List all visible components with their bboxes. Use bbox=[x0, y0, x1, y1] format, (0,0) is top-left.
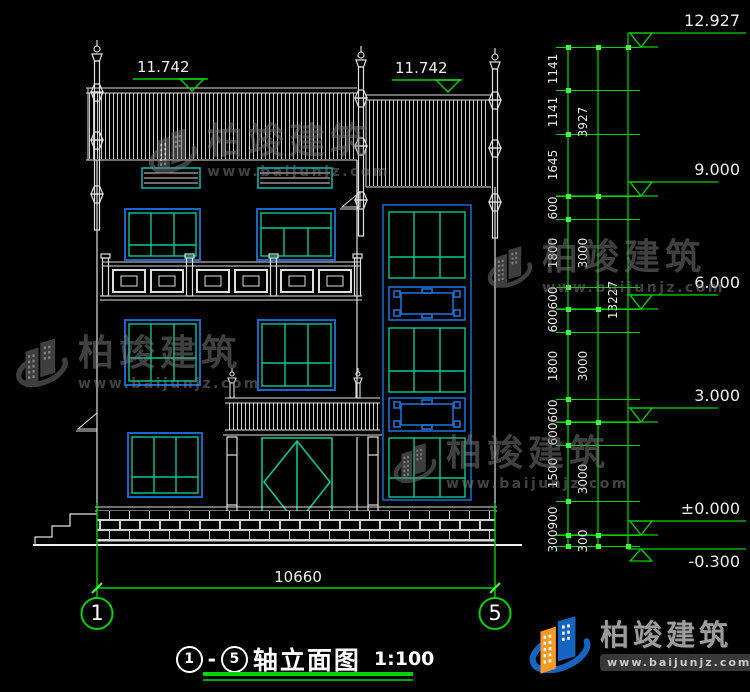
window-r3 bbox=[258, 320, 335, 390]
footer-brand-logo: 柏竣建筑 www.baijunjz.com bbox=[527, 609, 750, 683]
level-12927: 12.927 bbox=[630, 13, 740, 29]
louver-vent-left bbox=[142, 168, 200, 188]
brick-base bbox=[95, 507, 497, 541]
elevation-drawing bbox=[0, 0, 750, 692]
roof-level-left: 11.742 bbox=[137, 60, 190, 75]
window-r2 bbox=[257, 209, 335, 260]
axis-bubble-1: 1 bbox=[77, 603, 117, 624]
level-6000: 6.000 bbox=[630, 275, 740, 291]
width-dimension: 10660 bbox=[266, 570, 330, 585]
level-neg0300: -0.300 bbox=[630, 554, 740, 570]
footer-brand: 柏竣建筑 bbox=[600, 621, 750, 650]
canopy-finial-right bbox=[354, 368, 362, 398]
entry-steps bbox=[35, 514, 97, 545]
title-underline-thin bbox=[203, 679, 413, 681]
footer-url: www.baijunjz.com bbox=[600, 654, 750, 671]
right-roof bbox=[366, 95, 491, 187]
roof-level-flags bbox=[133, 79, 462, 92]
right-dim-chain-lines bbox=[568, 33, 628, 549]
title-underline-thick bbox=[203, 672, 413, 676]
window-l3 bbox=[125, 320, 200, 385]
canopy-finial-left bbox=[228, 368, 236, 398]
window-lg bbox=[128, 433, 202, 497]
louver-vent-right bbox=[258, 168, 332, 188]
title-dash: - bbox=[208, 647, 216, 671]
left-roof bbox=[86, 88, 357, 160]
title-scale: 1:100 bbox=[374, 648, 434, 670]
window-l2 bbox=[125, 209, 200, 260]
level-0000: ±0.000 bbox=[630, 501, 740, 517]
level-flags bbox=[556, 33, 746, 561]
title-axis-to: 5 bbox=[221, 646, 248, 673]
eave-bracket-left bbox=[76, 413, 97, 431]
entrance-canopy bbox=[223, 398, 382, 435]
brand-logo-icon bbox=[527, 609, 593, 683]
stairwell-stack bbox=[383, 205, 471, 500]
level-9000: 9.000 bbox=[630, 162, 740, 178]
roof-level-right: 11.742 bbox=[395, 61, 448, 76]
title-axis-from: 1 bbox=[176, 646, 203, 673]
cad-canvas: { "watermark": { "brand": "柏竣建筑", "url":… bbox=[0, 0, 750, 692]
level-3000: 3.000 bbox=[630, 388, 740, 404]
axis-bubble-5: 5 bbox=[475, 603, 515, 624]
